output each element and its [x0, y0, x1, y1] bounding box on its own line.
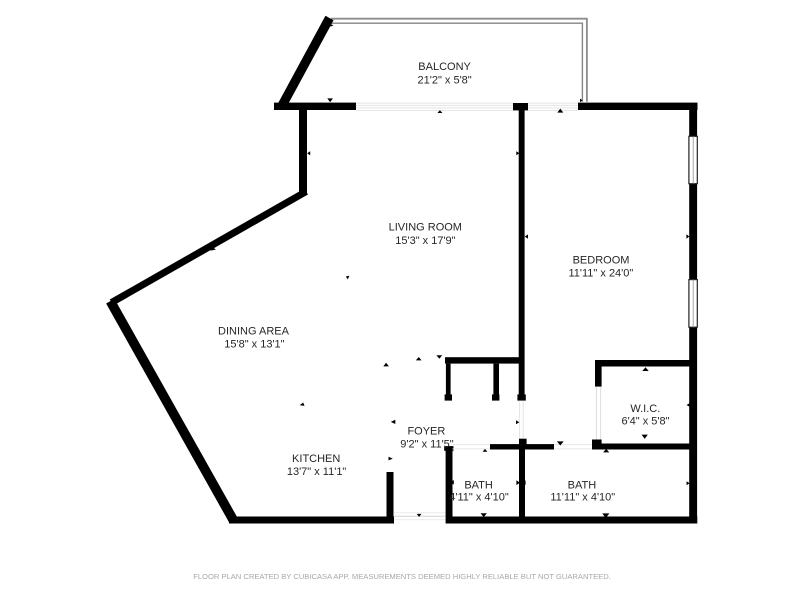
svg-text:15'3" x 17'9": 15'3" x 17'9" — [395, 235, 455, 247]
svg-text:4'11" x 4'10": 4'11" x 4'10" — [449, 491, 509, 503]
svg-text:BEDROOM: BEDROOM — [573, 254, 630, 266]
svg-text:FLOOR PLAN CREATED BY CUBICASA: FLOOR PLAN CREATED BY CUBICASA APP. MEAS… — [193, 572, 611, 581]
svg-text:9'2" x 11'5": 9'2" x 11'5" — [400, 438, 453, 450]
svg-text:BATH: BATH — [464, 479, 493, 491]
svg-text:13'7" x 11'1": 13'7" x 11'1" — [287, 466, 347, 478]
svg-text:FOYER: FOYER — [407, 425, 445, 437]
svg-text:LIVING ROOM: LIVING ROOM — [389, 221, 462, 233]
svg-text:DINING AREA: DINING AREA — [218, 326, 290, 338]
svg-text:15'8" x 13'1": 15'8" x 13'1" — [224, 339, 284, 351]
svg-text:W.I.C.: W.I.C. — [630, 403, 660, 415]
svg-text:BATH: BATH — [568, 479, 597, 491]
svg-text:21'2" x 5'8": 21'2" x 5'8" — [417, 75, 471, 87]
svg-text:BALCONY: BALCONY — [418, 61, 471, 73]
svg-text:11'11" x 24'0": 11'11" x 24'0" — [568, 268, 633, 280]
svg-text:KITCHEN: KITCHEN — [292, 453, 340, 465]
svg-text:6'4" x 5'8": 6'4" x 5'8" — [621, 415, 669, 427]
svg-text:11'11" x 4'10": 11'11" x 4'10" — [550, 491, 615, 503]
